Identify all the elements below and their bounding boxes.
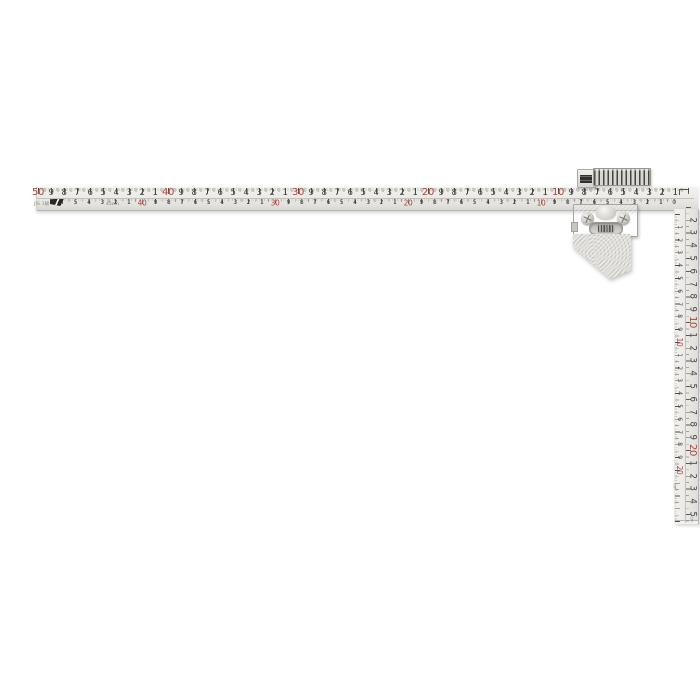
jis-certification-text: JIS 1級 [34, 203, 50, 208]
scale-number: 6 [87, 189, 92, 198]
scale-number: 4 [87, 200, 90, 206]
scale-number: 1 [676, 353, 682, 356]
scale-number: 4 [687, 499, 696, 504]
product-photo: 5098765432140987654321309876543212098765… [0, 0, 700, 700]
scale-number: 6 [676, 289, 682, 292]
scale-number: 7 [313, 200, 316, 206]
scale-number: 1 [393, 200, 396, 206]
scale-number: 50 [32, 188, 44, 198]
unit-label-text: cm [672, 483, 677, 489]
scale-number: 10 [552, 188, 564, 198]
scale-number: 10 [687, 316, 697, 328]
scale-number: 3 [687, 358, 696, 363]
scale-number: 4 [486, 200, 489, 206]
scale-number: 7 [334, 189, 339, 198]
scale-number: 1 [152, 189, 157, 198]
scale-number: 40 [138, 200, 147, 208]
scale-number: 7 [676, 302, 682, 305]
scale-number: 5 [207, 200, 210, 206]
scale-number: 1 [260, 200, 263, 206]
scale-number: 9 [676, 455, 682, 458]
knurled-knob [598, 225, 614, 232]
scale-number: 3 [256, 189, 261, 198]
scale-number: 3 [126, 189, 131, 198]
scale-number: 1 [672, 189, 677, 198]
scale-number: 6 [193, 200, 196, 206]
scale-number: 1 [526, 200, 529, 206]
corner-notch [571, 222, 578, 232]
scale-number: 10 [537, 200, 546, 208]
scale-number: 2 [687, 345, 696, 350]
scale-number: 4 [687, 371, 696, 376]
scale-number: 20 [422, 188, 434, 198]
scale-number: 4 [113, 189, 118, 198]
scale-number: 8 [566, 200, 569, 206]
scale-number: 9 [178, 189, 183, 198]
scale-number: 1 [282, 189, 287, 198]
scale-number: 9 [308, 189, 313, 198]
scale-number: 4 [676, 391, 682, 394]
scale-number: 0 [672, 200, 675, 206]
scale-number: 8 [687, 422, 696, 427]
scale-number: 8 [676, 443, 682, 446]
scale-number: 1 [676, 225, 682, 228]
scale-number: 8 [581, 189, 586, 198]
scale-number: 9 [287, 200, 290, 206]
scale-number: 4 [633, 189, 638, 198]
scale-number: 2 [659, 189, 664, 198]
length-mark-text: 45cm [106, 203, 119, 208]
scale-number: 6 [607, 189, 612, 198]
scale-number: 8 [687, 294, 696, 299]
scale-number: 20 [687, 444, 697, 456]
scale-number: 5 [687, 255, 696, 260]
scale-number: 7 [464, 189, 469, 198]
scale-number: 7 [687, 281, 696, 286]
scale-number: 8 [676, 315, 682, 318]
scale-number: 2 [646, 200, 649, 206]
scale-number: 6 [347, 189, 352, 198]
scale-number: 3 [516, 189, 521, 198]
scale-number: 2 [399, 189, 404, 198]
scale-number: 2 [513, 200, 516, 206]
scale-number: 2 [676, 366, 682, 369]
scale-number: 3 [687, 486, 696, 491]
scale-number: 4 [687, 243, 696, 248]
scale-number: 9 [154, 200, 157, 206]
scale-number: 8 [167, 200, 170, 206]
scale-number: 3 [676, 379, 682, 382]
scale-number: 2 [269, 189, 274, 198]
scale-number: 8 [433, 200, 436, 206]
stopper-clamp [577, 167, 650, 187]
scale-number: 5 [230, 189, 235, 198]
scale-number: 1 [659, 200, 662, 206]
scale-number: 8 [61, 189, 66, 198]
knurled-band [593, 168, 652, 186]
scale-number: 6 [326, 200, 329, 206]
scale-number: 2 [687, 217, 696, 222]
scale-number: 1 [687, 332, 696, 337]
scale-number: 3 [646, 189, 651, 198]
scale-number: 2 [676, 238, 682, 241]
scale-number: 6 [687, 396, 696, 401]
unit-label-text: cm [689, 516, 694, 522]
scale-number: 30 [292, 188, 304, 198]
scale-number: 8 [321, 189, 326, 198]
scale-number: 20 [404, 200, 413, 208]
scale-number: 2 [687, 473, 696, 478]
scale-number: 3 [366, 200, 369, 206]
stopper-plate-wrap [571, 234, 635, 283]
scale-number: 5 [473, 200, 476, 206]
scale-number: 9 [48, 189, 53, 198]
corner-datum-icon [679, 189, 688, 196]
scale-number: 5 [340, 200, 343, 206]
stopper-body [573, 204, 639, 237]
scale-number: 10 [675, 338, 683, 347]
scale-number: 1 [127, 200, 130, 206]
scale-number: 5 [100, 189, 105, 198]
scale-number: 9 [687, 307, 696, 312]
scale-number: 2 [247, 200, 250, 206]
scale-number: 30 [271, 200, 280, 208]
scale-number: 7 [594, 189, 599, 198]
scale-number: 9 [568, 189, 573, 198]
scale-number: 9 [420, 200, 423, 206]
scale-number: 8 [451, 189, 456, 198]
scale-number: 6 [477, 189, 482, 198]
pivot-dome [596, 206, 616, 219]
scale-number: 4 [503, 189, 508, 198]
scale-number: 3 [499, 200, 502, 206]
scale-numbers: 5098765432140987654321309876543212098765… [0, 0, 700, 700]
scale-number: 1 [542, 189, 547, 198]
scale-number: 1 [412, 189, 417, 198]
scale-number: 5 [676, 404, 682, 407]
scale-number: 2 [139, 189, 144, 198]
scale-number: 3 [687, 230, 696, 235]
scale-number: 4 [220, 200, 223, 206]
stopper-plate [571, 234, 635, 283]
scale-number: 5 [74, 200, 77, 206]
scale-number: 4 [676, 263, 682, 266]
scale-number: 7 [687, 409, 696, 414]
scale-number: 7 [676, 430, 682, 433]
scale-number: 6 [676, 417, 682, 420]
scale-number: 40 [162, 188, 174, 198]
scale-number: 5 [620, 189, 625, 198]
scale-number: 3 [676, 251, 682, 254]
scale-number: 6 [217, 189, 222, 198]
scale-number: 4 [353, 200, 356, 206]
scale-number: 7 [204, 189, 209, 198]
scale-number: 8 [191, 189, 196, 198]
scale-number: 8 [300, 200, 303, 206]
scale-number: 5 [360, 189, 365, 198]
scale-number: 6 [687, 268, 696, 273]
scale-number: 5 [490, 189, 495, 198]
scale-number: 6 [459, 200, 462, 206]
scale-number: 1 [687, 460, 696, 465]
stopper-label [580, 175, 593, 183]
scale-number: 9 [553, 200, 556, 206]
scale-number: 9 [687, 435, 696, 440]
scale-number: 2 [380, 200, 383, 206]
scale-number: 9 [438, 189, 443, 198]
scale-number: 2 [529, 189, 534, 198]
scale-number: 3 [386, 189, 391, 198]
scale-number: 3 [233, 200, 236, 206]
scale-number: 5 [687, 383, 696, 388]
scale-number: 9 [676, 327, 682, 330]
scale-number: 7 [446, 200, 449, 206]
scale-number: 20 [675, 466, 683, 475]
scale-number: 3 [100, 200, 103, 206]
scale-number: 7 [180, 200, 183, 206]
scale-number: 4 [243, 189, 248, 198]
scale-number: 7 [74, 189, 79, 198]
scale-number: 5 [676, 276, 682, 279]
scale-number: 4 [373, 189, 378, 198]
